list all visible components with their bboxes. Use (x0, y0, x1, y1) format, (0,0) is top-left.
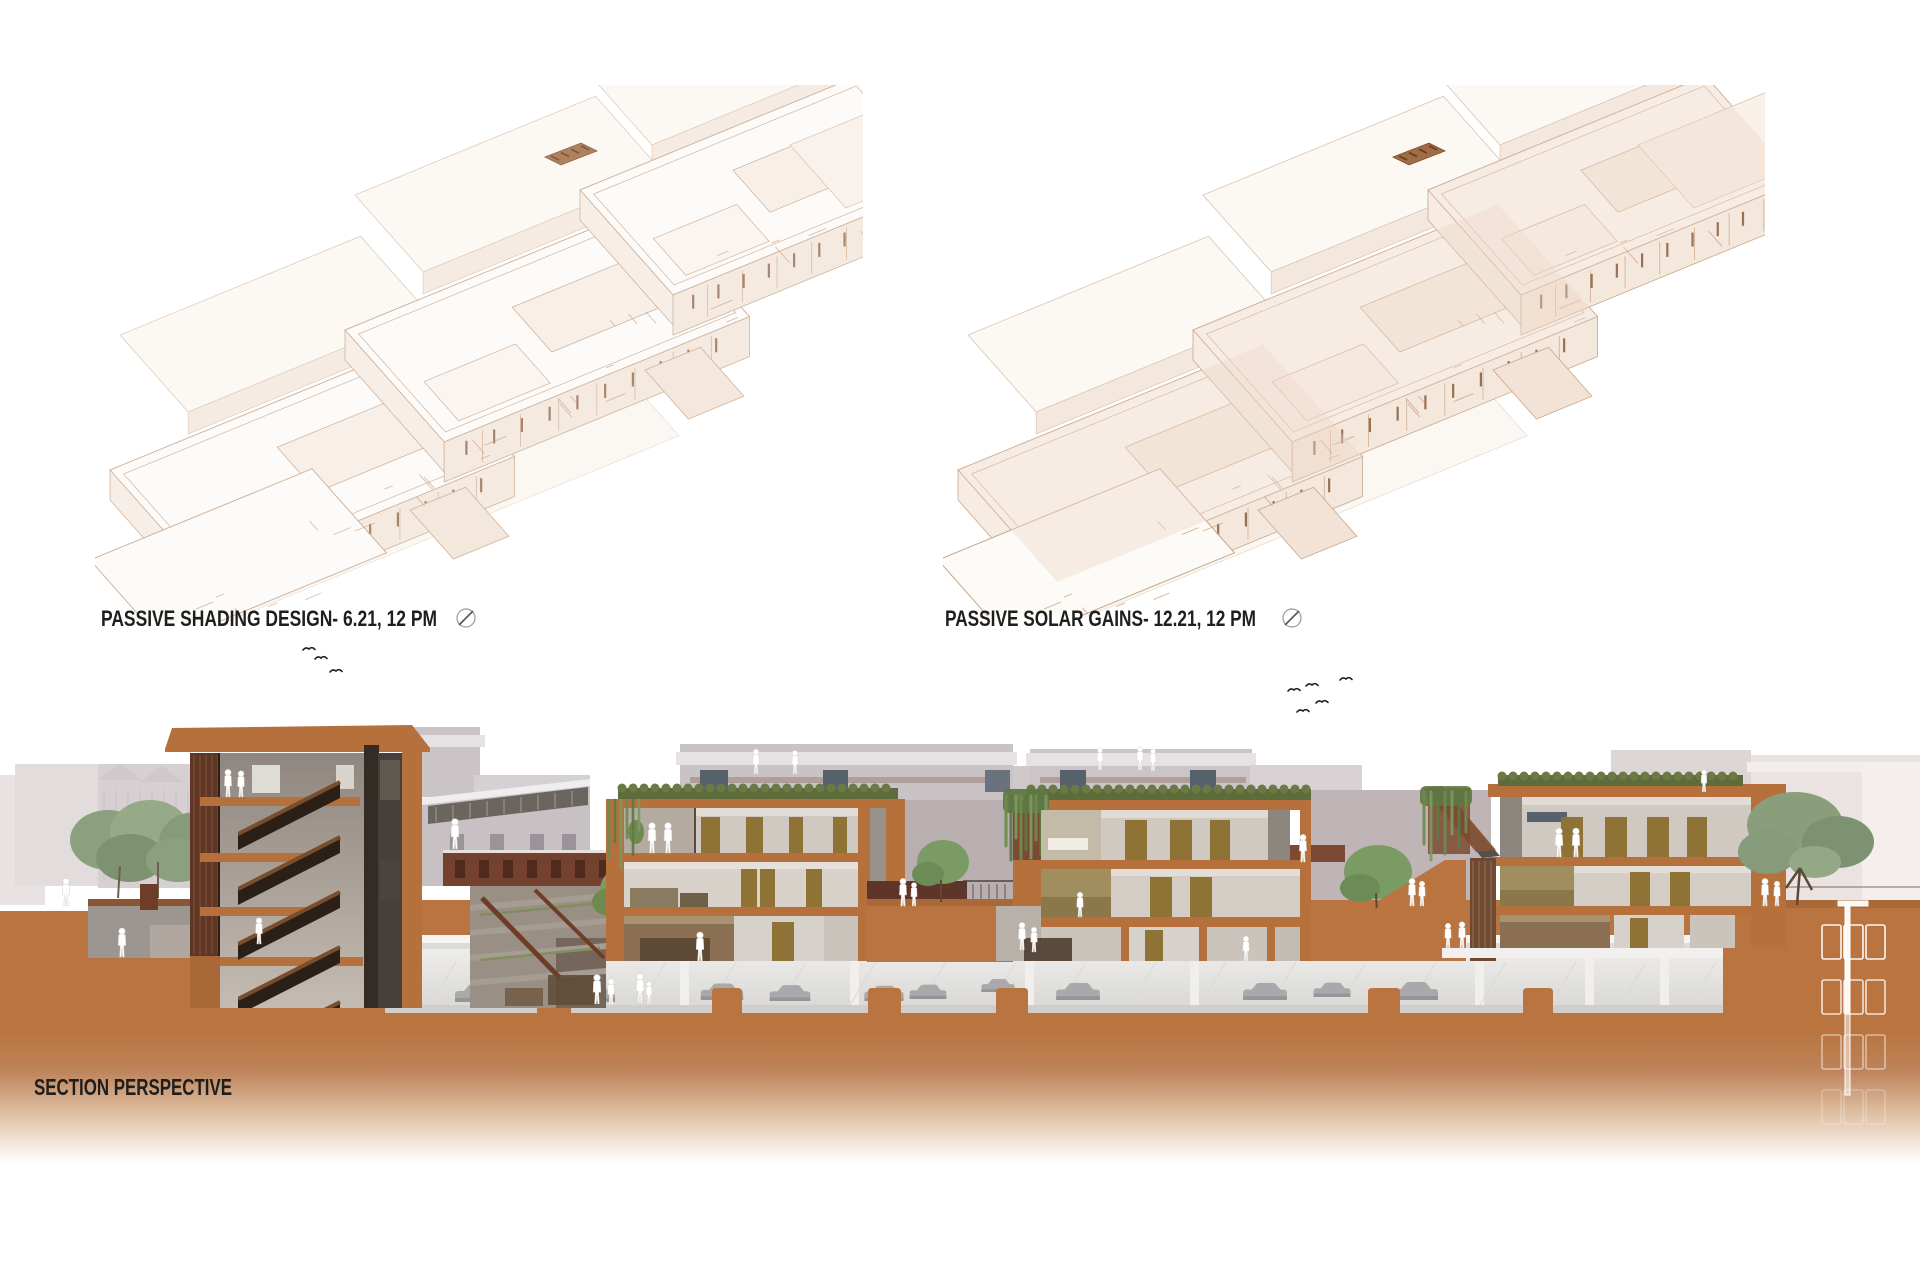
svg-text:PASSIVE SOLAR GAINS- 12.21, 12: PASSIVE SOLAR GAINS- 12.21, 12 PM (945, 606, 1256, 631)
svg-text:PASSIVE SHADING DESIGN- 6.21,: PASSIVE SHADING DESIGN- 6.21, 12 PM (101, 606, 437, 631)
svg-text:SECTION PERSPECTIVE: SECTION PERSPECTIVE (34, 1074, 232, 1100)
